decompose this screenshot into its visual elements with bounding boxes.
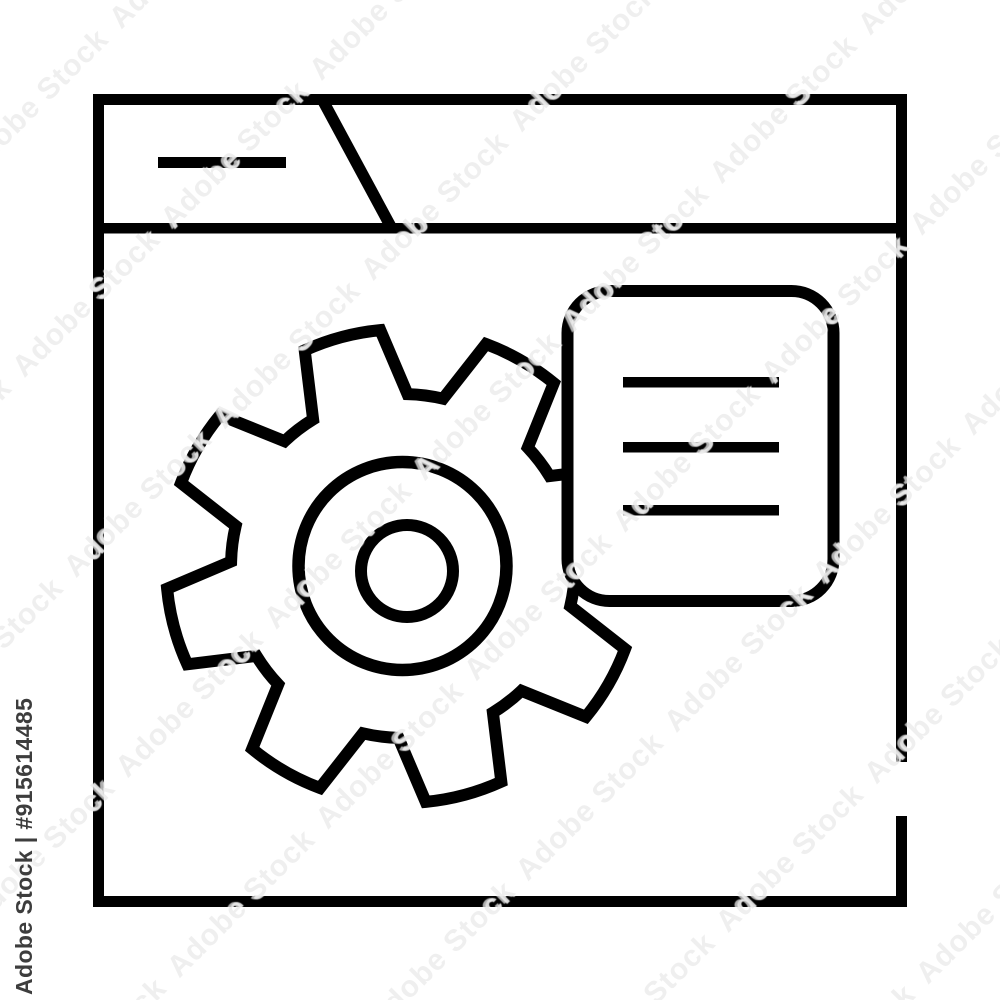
minimize-dash — [158, 157, 286, 168]
frame-right-border-lower — [896, 816, 907, 907]
gear-hub-circle — [361, 525, 453, 617]
header-diagonal-line — [322, 99, 391, 227]
note-panel — [568, 291, 834, 601]
note-line-1 — [623, 377, 779, 388]
stock-icon-image: Adobe StockAdobe StockAdobe StockAdobe S… — [0, 0, 1000, 1000]
webpage-settings-icon — [0, 0, 1000, 1000]
header-divider — [93, 223, 907, 234]
note-line-3 — [623, 505, 779, 516]
note-line-2 — [623, 442, 779, 453]
frame-top-border — [93, 94, 907, 105]
frame-left-border — [93, 94, 104, 907]
frame-right-border-upper — [896, 94, 907, 762]
frame-bottom-border — [93, 896, 907, 907]
